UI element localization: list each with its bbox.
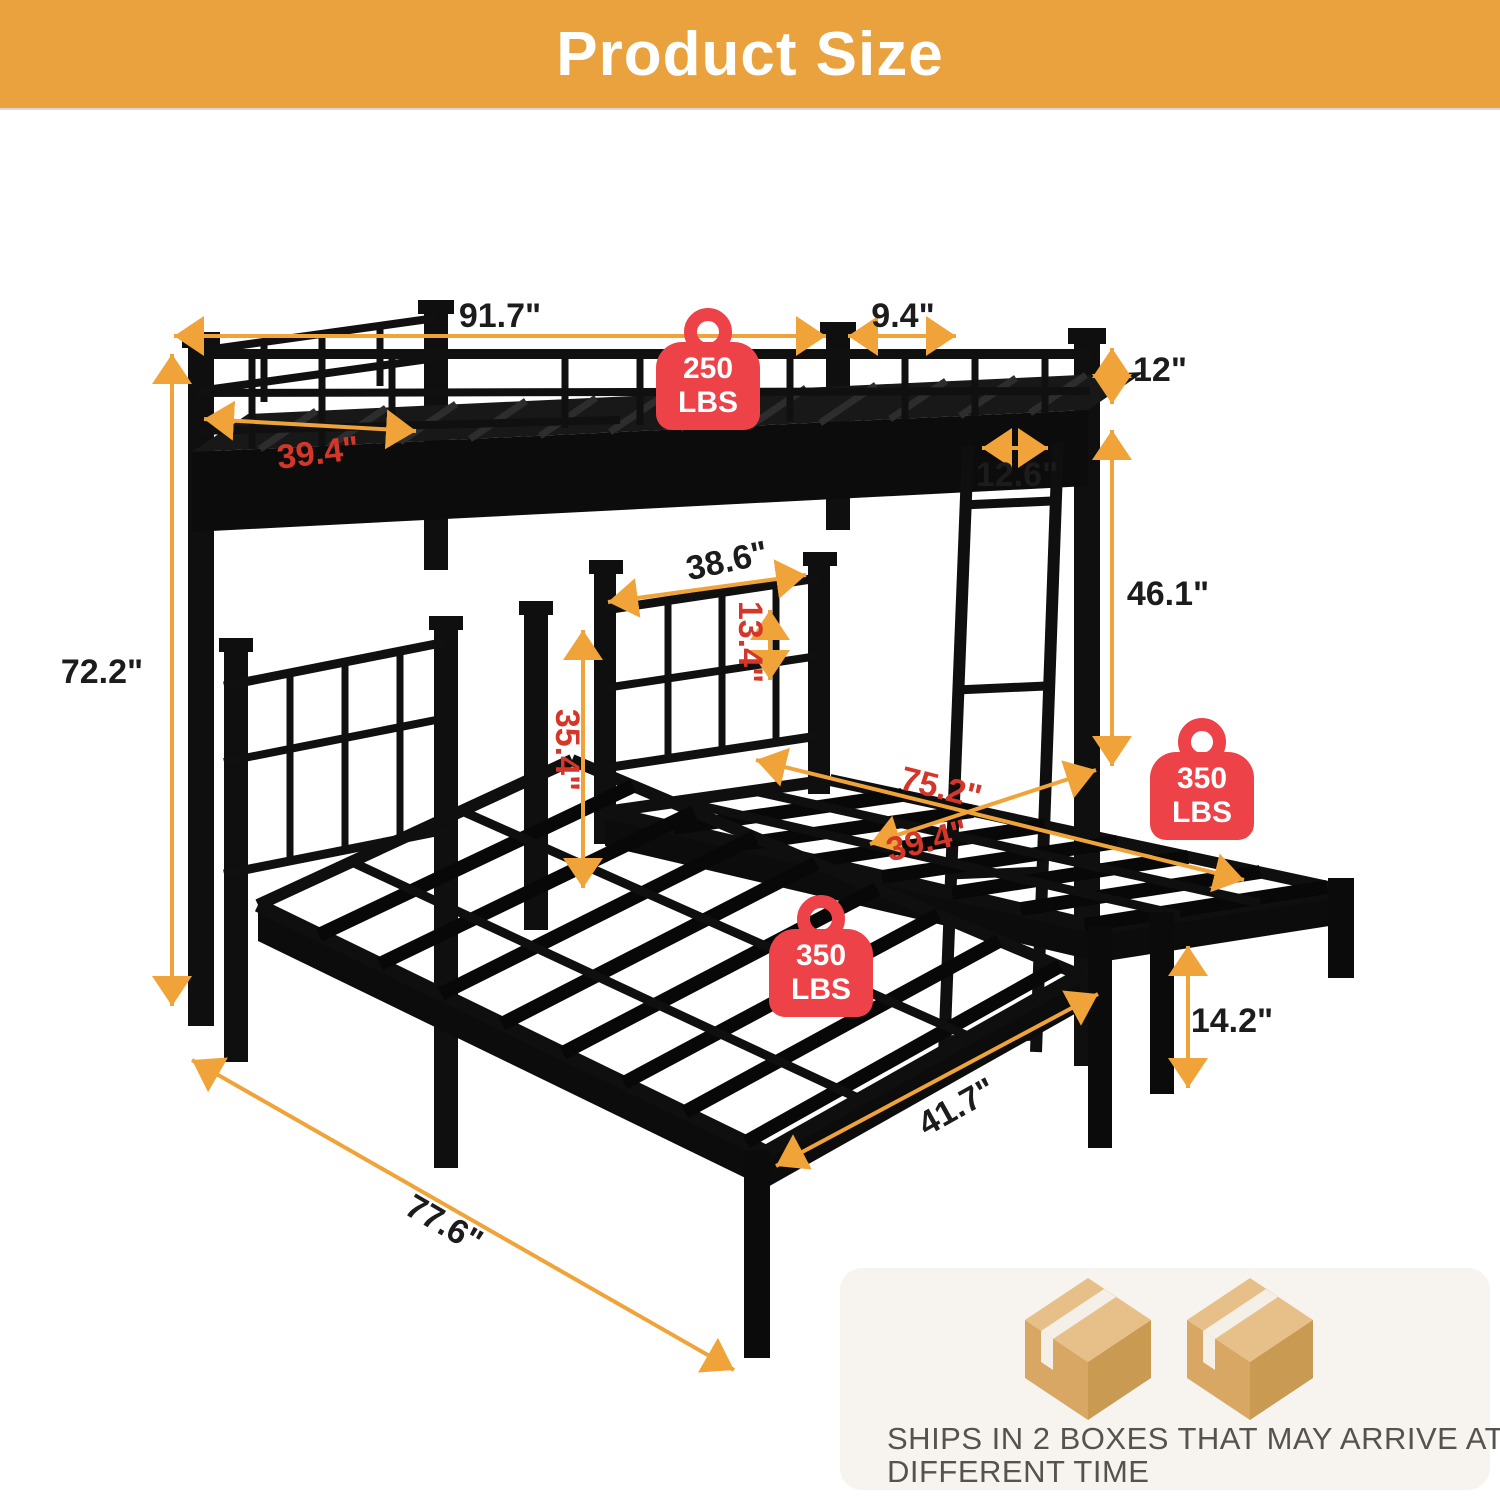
dim-label-under-clearance: 46.1" — [1127, 577, 1209, 611]
weight-value: 250 — [683, 352, 733, 386]
dim-label-headboard-rail-gap: 13.4" — [733, 601, 767, 683]
weight-badge-left-bed: 350 LBS — [768, 895, 874, 1017]
weight-unit: LBS — [791, 973, 851, 1007]
shipping-note-line1: SHIPS IN 2 BOXES THAT MAY ARRIVE AT — [887, 1423, 1500, 1456]
product-size-infographic: Product Size — [0, 0, 1500, 1496]
weight-badge-right-bed: 350 LBS — [1149, 718, 1255, 840]
weight-unit: LBS — [1172, 796, 1232, 830]
dim-label-end-overhang: 9.4" — [871, 299, 934, 333]
weight-badge-top-bunk-body: 250 LBS — [656, 342, 760, 430]
dim-label-leg-height: 14.2" — [1191, 1004, 1273, 1038]
shipping-note-panel: SHIPS IN 2 BOXES THAT MAY ARRIVE AT DIFF… — [840, 1268, 1490, 1490]
weight-badge-left-bed-body: 350 LBS — [769, 929, 873, 1017]
left-bed-legs — [744, 1150, 770, 1358]
dim-label-lower-headboard-height: 35.4" — [550, 709, 584, 791]
shipping-note-line2: DIFFERENT TIME — [887, 1456, 1500, 1489]
dim-label-overall-height: 72.2" — [61, 655, 143, 689]
weight-badge-right-bed-body: 350 LBS — [1150, 752, 1254, 840]
shipping-box-icon — [1025, 1278, 1151, 1420]
weight-value: 350 — [796, 939, 846, 973]
dim-label-overall-length: 91.7" — [459, 299, 541, 333]
weight-value: 350 — [1177, 762, 1227, 796]
right-bed-headboard-rails — [605, 578, 818, 768]
dim-label-guardrail-height: 12" — [1133, 353, 1187, 387]
shipping-note-text: SHIPS IN 2 BOXES THAT MAY ARRIVE AT DIFF… — [887, 1423, 1500, 1489]
dim-label-ladder-width: 12.6" — [976, 458, 1058, 492]
weight-unit: LBS — [678, 386, 738, 420]
dim-label-top-bunk-width: 39.4" — [275, 431, 361, 475]
shipping-box-icon — [1187, 1278, 1313, 1420]
weight-badge-top-bunk: 250 LBS — [655, 308, 761, 430]
